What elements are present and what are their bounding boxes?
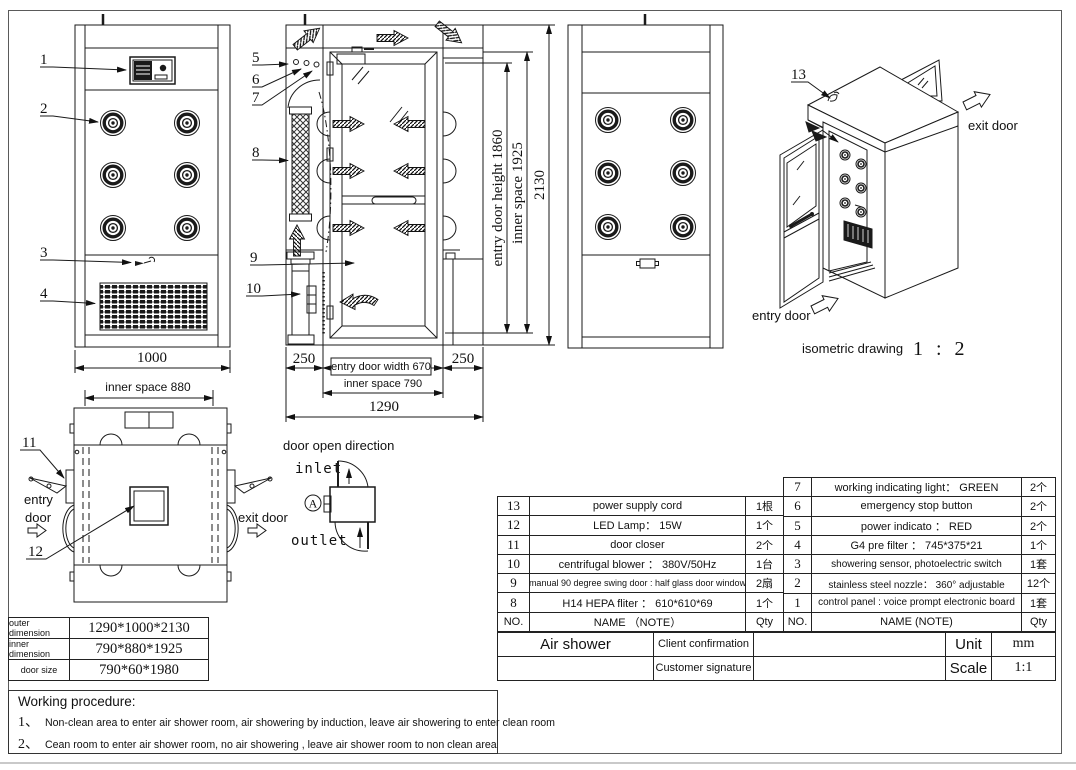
parts-table-left: 13 power supply cord 1根 12 LED Lamp： 15W… <box>497 496 784 632</box>
dim-row-value: 790*60*1980 <box>70 660 208 680</box>
isometric-view: 13 exit door entry door isometric drawin… <box>752 60 1019 360</box>
door-direction-title: door open direction <box>283 438 394 453</box>
parts-table-right: 7 working indicating light： GREEN 2个 6 e… <box>783 477 1056 632</box>
scale-value: 1:1 <box>992 657 1055 681</box>
iso-scale: 1 : 2 <box>913 338 969 360</box>
part-qty: 1台 <box>746 555 783 573</box>
exit-direction-arrow <box>963 92 990 110</box>
callout-4: 4 <box>40 286 48 302</box>
part-qty: 2个 <box>746 536 783 554</box>
dim-total-height: 2130 <box>532 170 548 200</box>
part-no: 3 <box>784 555 812 573</box>
part-qty: 1个 <box>746 593 783 611</box>
top-entry-label-2: door <box>25 510 52 525</box>
client-confirmation-field <box>754 633 946 657</box>
glass-marks <box>352 67 408 126</box>
working-procedure-title: Working procedure: <box>18 694 488 709</box>
top-entry-arrow <box>28 524 46 537</box>
table-row: 12 LED Lamp： 15W 1个 <box>498 516 783 535</box>
procedure-item: 1、 Non-clean area to enter air shower ro… <box>18 711 488 731</box>
dim-row-label: door size <box>9 660 70 680</box>
return-grille <box>100 283 207 330</box>
part-no: 8 <box>498 593 530 611</box>
marker-a: A <box>309 497 318 511</box>
scale-label: Scale <box>946 657 992 681</box>
part-name: G4 pre filter ： 745*375*21 <box>812 536 1022 554</box>
table-row: door size 790*60*1980 <box>9 660 208 680</box>
dim-inner-height: inner space 1925 <box>510 142 526 244</box>
control-panel <box>130 57 175 84</box>
part-no: 4 <box>784 536 812 554</box>
callout-10: 10 <box>246 281 261 297</box>
part-qty: 2个 <box>1022 517 1055 535</box>
back-view <box>568 14 723 348</box>
procedure-item-number: 1、 <box>18 711 45 731</box>
callout-7: 7 <box>252 90 260 106</box>
part-qty: 12个 <box>1022 574 1055 592</box>
table-row: 8 H14 HEPA fliter ： 610*610*69 1个 <box>498 593 783 612</box>
table-row: 7 working indicating light： GREEN 2个 <box>784 478 1055 497</box>
table-header-row: NO. NAME （NOTE） Qty <box>498 613 783 631</box>
iso-open-door <box>780 130 823 308</box>
outlet-label: outlet <box>291 533 348 549</box>
header-name: NAME (NOTE) <box>812 613 1022 631</box>
callout-12: 12 <box>28 544 43 560</box>
procedure-item-text: Cean room to enter air shower room, no a… <box>45 739 497 751</box>
callout-1: 1 <box>40 52 48 68</box>
part-no: 1 <box>784 594 812 612</box>
title-block: Air shower Client confirmation Unit mm C… <box>497 632 1056 681</box>
part-no: 10 <box>498 555 530 573</box>
part-name: power supply cord <box>530 497 746 515</box>
part-no: 6 <box>784 497 812 515</box>
table-row: 9 manual 90 degree swing door : half gla… <box>498 574 783 593</box>
customer-signature-label: Customer signature <box>654 657 754 681</box>
product-name: Air shower <box>498 633 654 657</box>
unit-label: Unit <box>946 633 992 657</box>
part-qty: 1个 <box>746 516 783 534</box>
right-door-closer-arm <box>227 470 272 503</box>
working-procedure-box: Working procedure: 1、 Non-clean area to … <box>8 690 498 754</box>
part-qty: 1根 <box>746 497 783 515</box>
client-confirmation-label: Client confirmation <box>654 633 754 657</box>
table-row: 2 stainless steel nozzle： 360° adjustabl… <box>784 574 1055 593</box>
table-row: 4 G4 pre filter ： 745*375*21 1个 <box>784 536 1055 555</box>
iso-exit-door-label: exit door <box>968 118 1019 133</box>
part-name: power indicato ： RED <box>812 517 1022 535</box>
top-plan-view: inner space 880 <box>20 380 289 602</box>
dim-left-250: 250 <box>293 351 316 367</box>
part-qty: 2扇 <box>746 574 783 592</box>
part-name: showering sensor, photoelectric switch <box>812 555 1022 573</box>
header-no: NO. <box>784 613 812 631</box>
part-no: 7 <box>784 478 812 496</box>
back-handle <box>637 259 659 268</box>
part-no: 12 <box>498 516 530 534</box>
part-name: working indicating light： GREEN <box>812 478 1022 496</box>
callout-6: 6 <box>252 72 260 88</box>
right-wall-nozzles <box>443 112 456 240</box>
table-row: inner dimension 790*880*1925 <box>9 639 208 660</box>
header-no: NO. <box>498 613 530 631</box>
dim-row-value: 790*880*1925 <box>70 639 208 659</box>
dim-row-value: 1290*1000*2130 <box>70 618 208 638</box>
table-row: 5 power indicato ： RED 2个 <box>784 517 1055 536</box>
table-row: 1 control panel : voice prompt electroni… <box>784 594 1055 613</box>
ceiling-lamp <box>130 487 168 525</box>
callout-11: 11 <box>22 435 36 451</box>
callout-2: 2 <box>40 101 48 117</box>
part-qty: 2个 <box>1022 497 1055 515</box>
procedure-item: 2、 Cean room to enter air shower room, n… <box>18 733 488 753</box>
table-row: 13 power supply cord 1根 <box>498 497 783 516</box>
right-handle <box>227 505 238 552</box>
part-name: LED Lamp： 15W <box>530 516 746 534</box>
glass-door <box>327 47 437 338</box>
dim-right-250: 250 <box>452 351 475 367</box>
table-row: outer dimension 1290*1000*2130 <box>9 618 208 639</box>
part-name: emergency stop button <box>812 497 1022 515</box>
callout-8: 8 <box>252 145 260 161</box>
dim-row-label: inner dimension <box>9 639 70 659</box>
part-name: H14 HEPA fliter ： 610*610*69 <box>530 593 746 611</box>
iso-entry-door-label: entry door <box>752 308 811 323</box>
part-qty: 1个 <box>1022 536 1055 554</box>
dim-inner-space-880: inner space 880 <box>105 380 191 394</box>
nozzles-front <box>101 111 200 241</box>
top-exit-arrow <box>248 524 266 537</box>
table-header-row: NO. NAME (NOTE) Qty <box>784 613 1055 631</box>
customer-signature-field <box>754 657 946 681</box>
header-qty: Qty <box>1022 613 1055 631</box>
hepa-filter <box>290 107 312 221</box>
inlet-label: inlet <box>295 461 342 477</box>
part-no: 9 <box>498 574 530 592</box>
part-name: door closer <box>530 536 746 554</box>
callout-3: 3 <box>40 245 48 261</box>
dimension-table: outer dimension 1290*1000*2130 inner dim… <box>8 617 209 681</box>
interlock-sensor <box>135 257 155 266</box>
dim-outer-width: 1000 <box>137 350 167 366</box>
dim-door-width: entry door width 670 <box>331 361 431 373</box>
table-row: 11 door closer 2个 <box>498 536 783 555</box>
callout-9: 9 <box>250 250 258 266</box>
table-row: 6 emergency stop button 2个 <box>784 497 1055 516</box>
callout-5: 5 <box>252 50 260 66</box>
front-view: 1000 1 2 3 4 <box>40 14 230 373</box>
entry-direction-arrow <box>811 296 838 314</box>
callout-13: 13 <box>791 67 806 83</box>
dim-total-width: 1290 <box>369 399 399 415</box>
dim-inner-width: inner space 790 <box>344 378 422 390</box>
procedure-item-number: 2、 <box>18 733 45 753</box>
page-bottom-edge <box>0 762 1076 764</box>
unit-value: mm <box>992 633 1055 657</box>
title-block-empty-cell <box>498 657 654 681</box>
door-open-direction-diagram: door open direction inlet outlet A <box>283 438 394 551</box>
part-qty: 1套 <box>1022 594 1055 612</box>
dim-door-height: entry door height 1860 <box>490 129 506 266</box>
part-no: 2 <box>784 574 812 592</box>
table-row: 10 centrifugal blower ： 380V/50Hz 1台 <box>498 555 783 574</box>
side-section-view: 5 6 7 8 9 10 entry door height 1860 <box>246 14 555 422</box>
part-name: control panel : voice prompt electronic … <box>812 594 1022 612</box>
procedure-item-text: Non-clean area to enter air shower room,… <box>45 717 555 729</box>
top-entry-label-1: entry <box>24 492 53 507</box>
part-no: 11 <box>498 536 530 554</box>
engineering-drawing-page: 1000 1 2 3 4 <box>0 0 1076 770</box>
part-no: 13 <box>498 497 530 515</box>
part-name: centrifugal blower ： 380V/50Hz <box>530 555 746 573</box>
part-name: manual 90 degree swing door : half glass… <box>530 574 746 592</box>
part-qty: 2个 <box>1022 478 1055 496</box>
door-handle <box>372 197 416 204</box>
header-qty: Qty <box>746 613 783 631</box>
iso-caption: isometric drawing <box>802 341 903 356</box>
part-qty: 1套 <box>1022 555 1055 573</box>
dim-row-label: outer dimension <box>9 618 70 638</box>
part-name: stainless steel nozzle： 360° adjustable <box>812 574 1022 592</box>
table-row: 3 showering sensor, photoelectric switch… <box>784 555 1055 574</box>
header-name: NAME （NOTE） <box>530 613 746 631</box>
top-exit-label: exit door <box>238 510 289 525</box>
part-no: 5 <box>784 517 812 535</box>
